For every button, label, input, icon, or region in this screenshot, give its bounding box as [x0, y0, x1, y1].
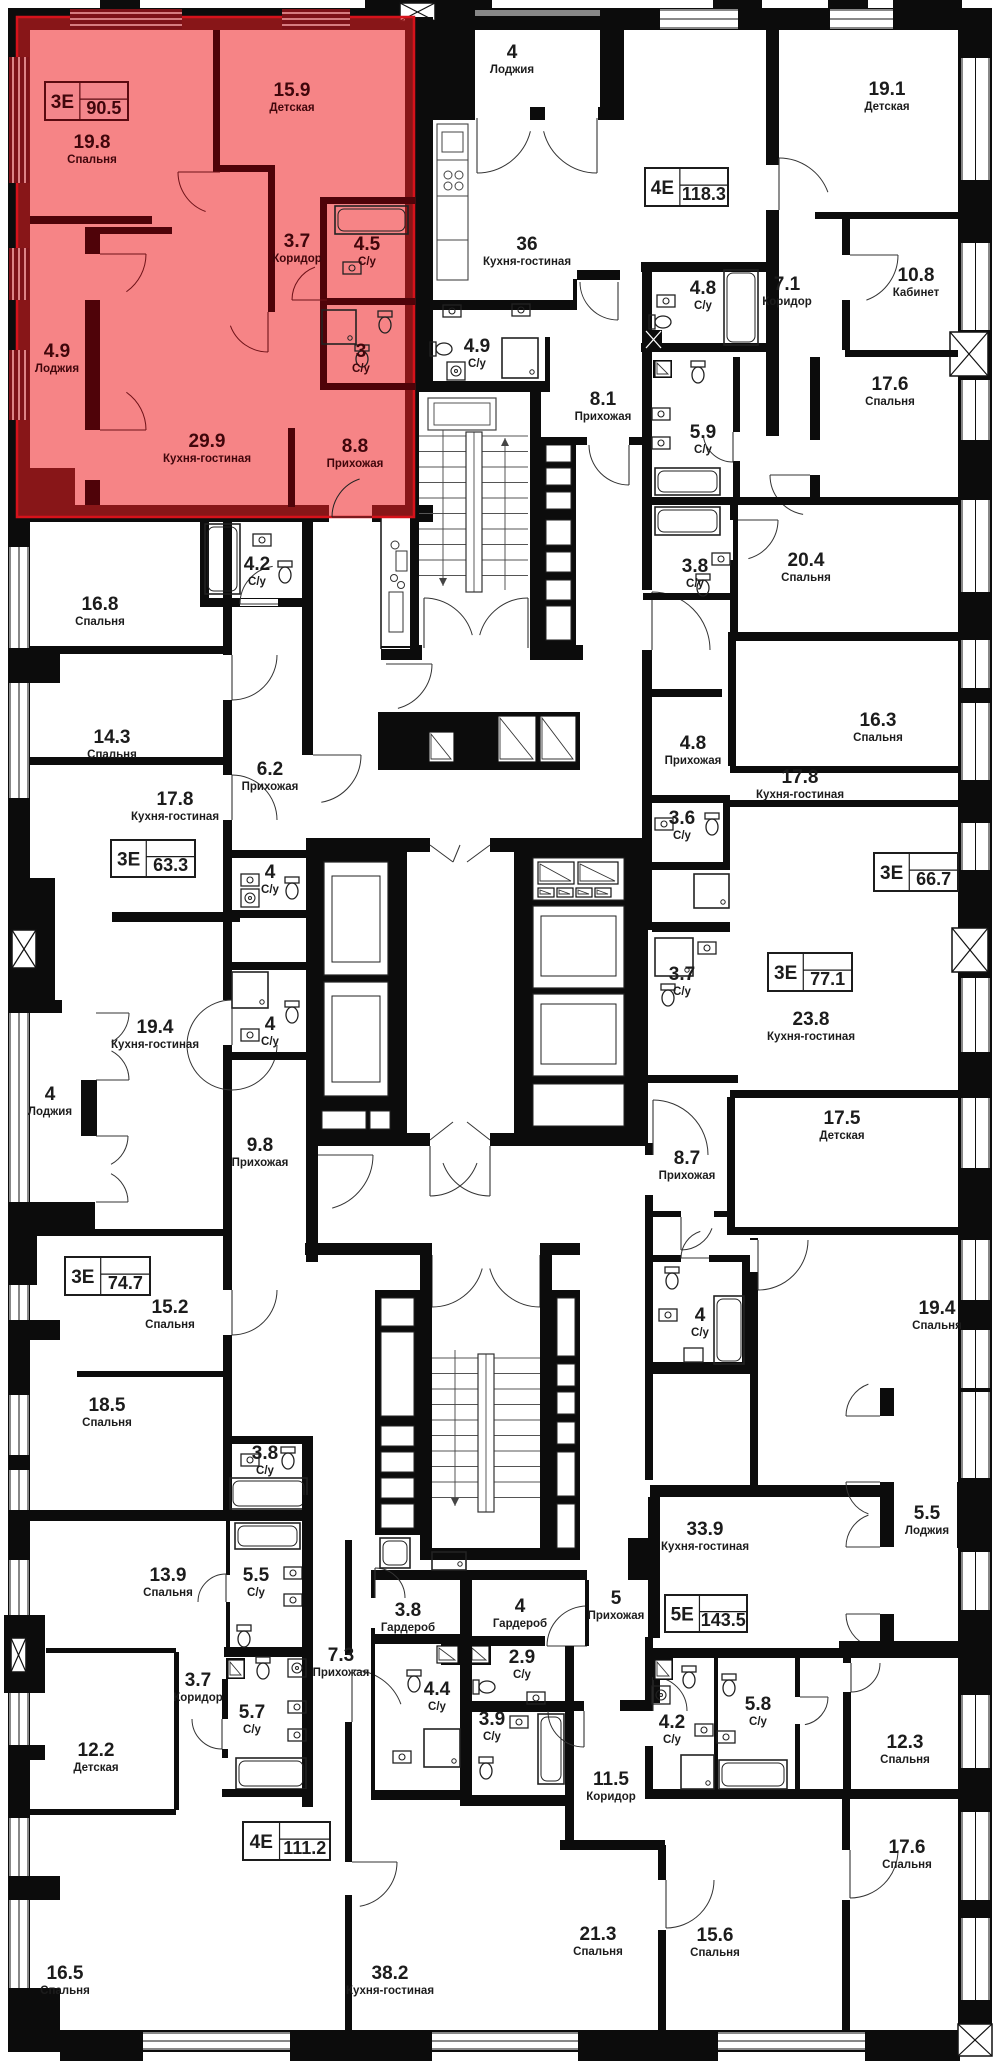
svg-text:Кухня-гостиная: Кухня-гостиная	[756, 789, 844, 801]
svg-text:Кухня-гостиная: Кухня-гостиная	[767, 1031, 855, 1043]
svg-text:Спальня: Спальня	[87, 749, 137, 761]
svg-text:5Е: 5Е	[671, 1605, 694, 1626]
svg-text:13.9: 13.9	[150, 1565, 187, 1586]
svg-text:4: 4	[45, 1084, 56, 1105]
svg-text:Спальня: Спальня	[880, 1754, 930, 1766]
svg-text:4.8: 4.8	[690, 278, 716, 299]
svg-text:Кухня-гостиная: Кухня-гостиная	[346, 1985, 434, 1997]
svg-text:12.3: 12.3	[887, 1732, 924, 1753]
svg-text:4.4: 4.4	[424, 1679, 451, 1700]
svg-text:4: 4	[265, 862, 276, 883]
svg-text:2.9: 2.9	[509, 1647, 535, 1668]
svg-text:5.9: 5.9	[690, 422, 716, 443]
svg-text:Спальня: Спальня	[67, 154, 117, 166]
svg-text:118.3: 118.3	[682, 184, 726, 204]
svg-text:4.9: 4.9	[44, 341, 70, 362]
svg-text:5: 5	[611, 1588, 622, 1609]
svg-text:3.8: 3.8	[395, 1600, 421, 1621]
svg-text:17.8: 17.8	[782, 767, 819, 788]
svg-text:6.2: 6.2	[257, 759, 283, 780]
svg-text:77.1: 77.1	[810, 969, 845, 989]
svg-text:3Е: 3Е	[71, 1267, 94, 1288]
svg-text:36: 36	[516, 234, 537, 255]
svg-text:111.2: 111.2	[283, 1838, 326, 1858]
svg-text:Детская: Детская	[864, 101, 909, 113]
svg-text:С/у: С/у	[248, 576, 267, 588]
svg-text:С/у: С/у	[749, 1716, 768, 1728]
svg-text:Прихожая: Прихожая	[659, 1170, 716, 1182]
svg-text:Прихожая: Прихожая	[313, 1667, 370, 1679]
svg-text:С/у: С/у	[513, 1669, 532, 1681]
svg-text:С/у: С/у	[256, 1465, 275, 1477]
svg-text:Лоджия: Лоджия	[35, 363, 79, 375]
svg-text:Коридор: Коридор	[173, 1692, 223, 1704]
svg-text:С/у: С/у	[663, 1734, 682, 1746]
svg-text:Детская: Детская	[819, 1130, 864, 1142]
svg-text:С/у: С/у	[243, 1724, 262, 1736]
svg-text:Лоджия: Лоджия	[28, 1106, 72, 1118]
svg-text:Спальня: Спальня	[145, 1319, 195, 1331]
svg-text:Кухня-гостиная: Кухня-гостиная	[163, 453, 251, 465]
svg-text:12.2: 12.2	[78, 1740, 115, 1761]
svg-text:23.8: 23.8	[793, 1009, 830, 1030]
svg-text:С/у: С/у	[247, 1587, 266, 1599]
svg-text:3Е: 3Е	[117, 850, 140, 871]
svg-text:4.9: 4.9	[464, 336, 490, 357]
svg-text:С/у: С/у	[694, 444, 713, 456]
svg-text:8.1: 8.1	[590, 389, 617, 410]
svg-text:5.5: 5.5	[243, 1565, 270, 1586]
svg-text:74.7: 74.7	[108, 1273, 143, 1293]
svg-text:С/у: С/у	[428, 1701, 447, 1713]
svg-text:10.8: 10.8	[898, 265, 935, 286]
svg-text:9.8: 9.8	[247, 1135, 273, 1156]
svg-text:18.5: 18.5	[89, 1395, 126, 1416]
svg-text:С/у: С/у	[483, 1731, 502, 1743]
svg-text:Коридор: Коридор	[586, 1791, 636, 1803]
svg-text:Прихожая: Прихожая	[327, 458, 384, 470]
svg-text:С/у: С/у	[352, 363, 371, 375]
svg-text:29.9: 29.9	[189, 431, 226, 452]
svg-text:17.6: 17.6	[872, 374, 909, 395]
svg-text:4: 4	[695, 1305, 706, 1326]
svg-text:С/у: С/у	[686, 578, 705, 590]
svg-text:Лоджия: Лоджия	[490, 64, 534, 76]
svg-text:Прихожая: Прихожая	[242, 781, 299, 793]
svg-text:С/у: С/у	[468, 358, 487, 370]
svg-text:21.3: 21.3	[580, 1924, 617, 1945]
svg-text:8.7: 8.7	[674, 1148, 700, 1169]
svg-text:16.3: 16.3	[860, 710, 897, 731]
svg-text:Прихожая: Прихожая	[588, 1610, 645, 1622]
svg-text:С/у: С/у	[358, 256, 377, 268]
svg-text:4.5: 4.5	[354, 234, 381, 255]
svg-text:3.6: 3.6	[669, 808, 695, 829]
svg-text:5.5: 5.5	[914, 1503, 941, 1524]
svg-text:Гардероб: Гардероб	[381, 1622, 435, 1634]
svg-text:3: 3	[356, 341, 367, 362]
svg-text:3Е: 3Е	[774, 963, 797, 984]
svg-text:Спальня: Спальня	[143, 1587, 193, 1599]
svg-text:14.3: 14.3	[94, 727, 131, 748]
svg-text:4.2: 4.2	[244, 554, 270, 575]
svg-text:Детская: Детская	[269, 102, 314, 114]
svg-text:С/у: С/у	[673, 986, 692, 998]
svg-text:66.7: 66.7	[916, 869, 951, 889]
svg-text:Спальня: Спальня	[75, 616, 125, 628]
svg-text:3.8: 3.8	[682, 556, 708, 577]
svg-text:20.4: 20.4	[788, 550, 825, 571]
svg-text:Детская: Детская	[73, 1762, 118, 1774]
svg-text:3.7: 3.7	[185, 1670, 211, 1691]
svg-text:Спальня: Спальня	[781, 572, 831, 584]
svg-text:90.5: 90.5	[86, 98, 121, 118]
svg-text:3.7: 3.7	[669, 964, 695, 985]
svg-text:5.7: 5.7	[239, 1702, 265, 1723]
svg-text:4Е: 4Е	[651, 178, 674, 199]
svg-text:4: 4	[265, 1014, 276, 1035]
svg-text:19.1: 19.1	[869, 79, 906, 100]
svg-text:7.3: 7.3	[328, 1645, 354, 1666]
svg-text:Кухня-гостиная: Кухня-гостиная	[131, 811, 219, 823]
svg-text:Спальня: Спальня	[853, 732, 903, 744]
svg-text:Коридор: Коридор	[272, 253, 322, 265]
svg-text:17.5: 17.5	[824, 1108, 861, 1129]
svg-text:Кабинет: Кабинет	[893, 287, 940, 299]
svg-text:Прихожая: Прихожая	[665, 755, 722, 767]
svg-text:3.7: 3.7	[284, 231, 310, 252]
svg-text:3.8: 3.8	[252, 1443, 278, 1464]
svg-text:Гардероб: Гардероб	[493, 1618, 547, 1630]
svg-text:Спальня: Спальня	[912, 1320, 962, 1332]
svg-text:15.6: 15.6	[697, 1925, 734, 1946]
svg-text:Спальня: Спальня	[82, 1417, 132, 1429]
svg-text:15.9: 15.9	[274, 80, 311, 101]
svg-text:Кухня-гостиная: Кухня-гостиная	[111, 1039, 199, 1051]
svg-text:Лоджия: Лоджия	[905, 1525, 949, 1537]
svg-text:19.4: 19.4	[919, 1298, 956, 1319]
svg-text:8.8: 8.8	[342, 436, 368, 457]
svg-text:С/у: С/у	[261, 884, 280, 896]
svg-text:63.3: 63.3	[153, 855, 188, 875]
svg-text:4: 4	[507, 42, 518, 63]
svg-text:4.8: 4.8	[680, 733, 706, 754]
svg-text:19.4: 19.4	[137, 1017, 174, 1038]
svg-text:19.8: 19.8	[74, 132, 111, 153]
svg-text:3Е: 3Е	[51, 92, 74, 113]
svg-text:Прихожая: Прихожая	[575, 411, 632, 423]
svg-text:17.8: 17.8	[157, 789, 194, 810]
svg-text:38.2: 38.2	[372, 1963, 409, 1984]
svg-text:С/у: С/у	[673, 830, 692, 842]
svg-text:5.8: 5.8	[745, 1694, 771, 1715]
svg-text:Спальня: Спальня	[882, 1859, 932, 1871]
svg-text:Прихожая: Прихожая	[232, 1157, 289, 1169]
svg-text:Спальня: Спальня	[690, 1947, 740, 1959]
svg-text:4: 4	[515, 1596, 526, 1617]
svg-text:Спальня: Спальня	[573, 1946, 623, 1958]
svg-text:11.5: 11.5	[593, 1769, 629, 1790]
svg-text:16.8: 16.8	[82, 594, 119, 615]
svg-text:7.1: 7.1	[774, 274, 801, 295]
svg-text:3Е: 3Е	[880, 863, 903, 884]
svg-text:3.9: 3.9	[479, 1709, 505, 1730]
svg-text:Спальня: Спальня	[865, 396, 915, 408]
svg-text:Коридор: Коридор	[762, 296, 812, 308]
svg-text:С/у: С/у	[261, 1036, 280, 1048]
svg-text:Кухня-гостиная: Кухня-гостиная	[483, 256, 571, 268]
svg-text:Спальня: Спальня	[40, 1985, 90, 1997]
svg-text:4Е: 4Е	[250, 1832, 273, 1853]
svg-text:Кухня-гостиная: Кухня-гостиная	[661, 1541, 749, 1553]
svg-text:15.2: 15.2	[152, 1297, 189, 1318]
svg-text:143.5: 143.5	[701, 1610, 746, 1630]
svg-text:16.5: 16.5	[47, 1963, 84, 1984]
svg-text:С/у: С/у	[694, 300, 713, 312]
svg-text:17.6: 17.6	[889, 1837, 926, 1858]
svg-text:С/у: С/у	[691, 1327, 710, 1339]
svg-text:33.9: 33.9	[687, 1519, 724, 1540]
svg-text:4.2: 4.2	[659, 1712, 685, 1733]
